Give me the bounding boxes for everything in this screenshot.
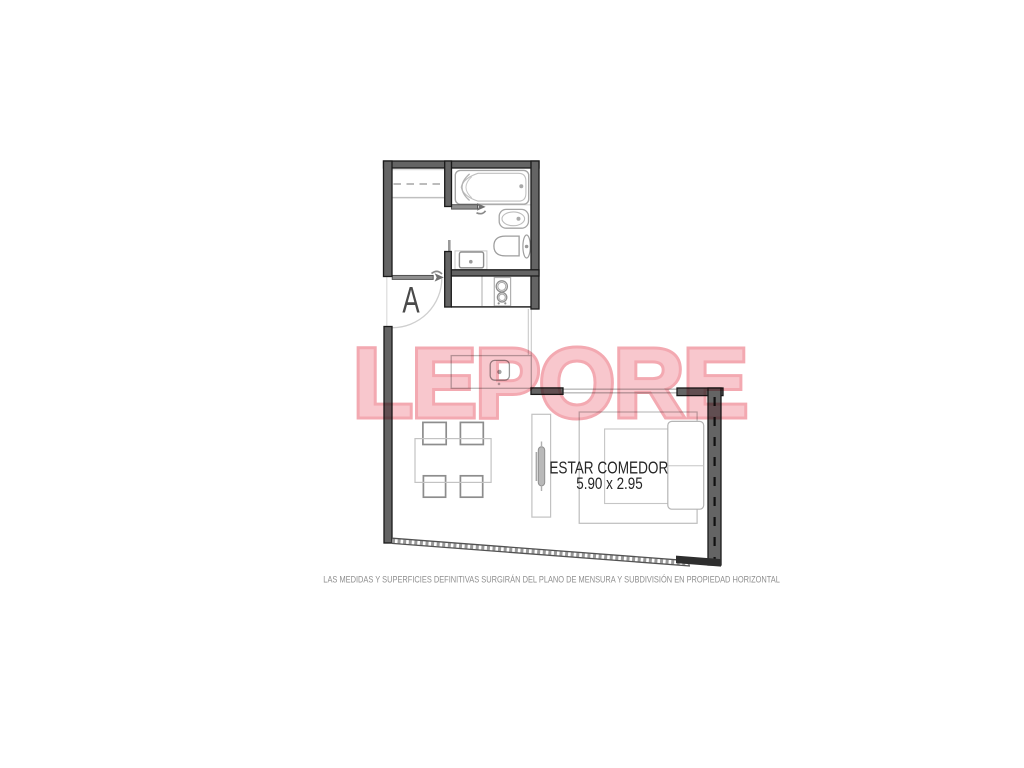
svg-text:LAS MEDIDAS Y SUPERFICIES DEFI: LAS MEDIDAS Y SUPERFICIES DEFINITIVAS SU… [323,574,780,585]
svg-text:5.90 x 2.95: 5.90 x 2.95 [576,475,642,494]
svg-text:LEPORE: LEPORE [353,329,747,438]
svg-text:A: A [402,279,420,321]
